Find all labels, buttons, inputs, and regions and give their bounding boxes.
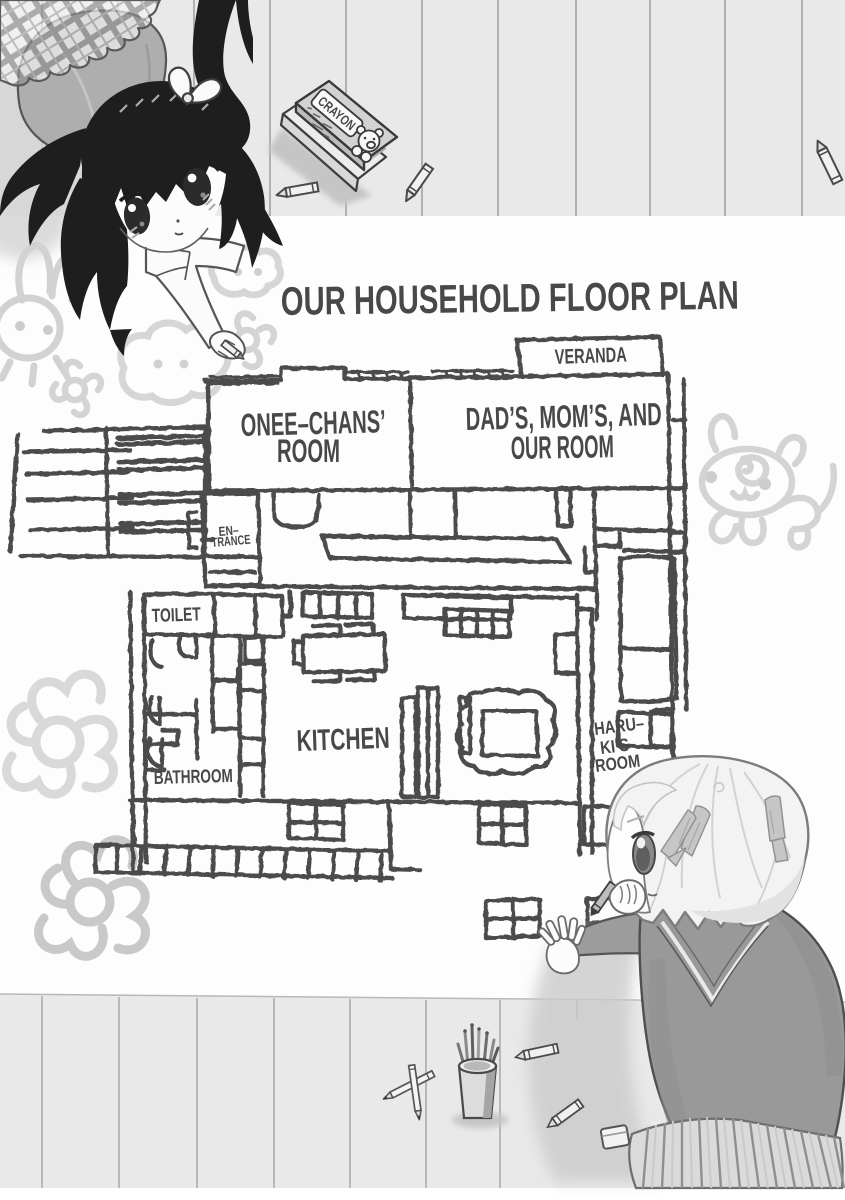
svg-text:KITCHEN: KITCHEN — [296, 722, 390, 758]
svg-text:ROOM: ROOM — [277, 433, 340, 469]
svg-text:OUR ROOM: OUR ROOM — [510, 428, 614, 466]
svg-text:OUR HOUSEHOLD FLOOR PLAN: OUR HOUSEHOLD FLOOR PLAN — [281, 274, 740, 324]
svg-text:VERANDA: VERANDA — [554, 343, 627, 368]
svg-text:TOILET: TOILET — [151, 604, 201, 627]
svg-text:BATHROOM: BATHROOM — [154, 766, 234, 789]
